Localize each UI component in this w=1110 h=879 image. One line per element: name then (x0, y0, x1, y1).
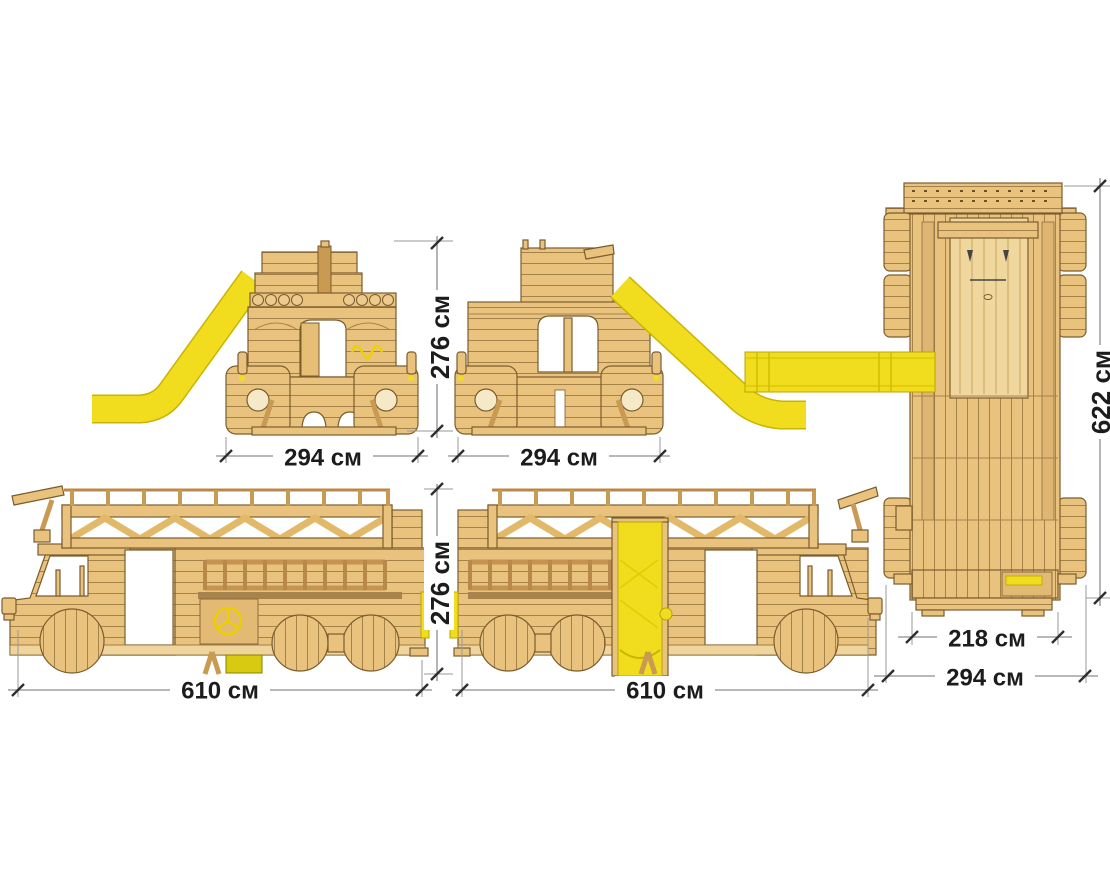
left-bench-shadow (198, 592, 402, 599)
front-roof-lower (255, 273, 362, 295)
rear-hub-right (621, 389, 643, 411)
right-front-bumper (868, 598, 882, 614)
front-roof-post (318, 246, 331, 295)
front-hub-right (375, 389, 397, 411)
plan-wheels-right (1058, 213, 1086, 578)
front-mirror-right (407, 352, 416, 374)
right-front-wheel (774, 609, 838, 673)
side-right-length-label: 610 см (626, 678, 704, 705)
left-ladder-overhang (12, 486, 64, 542)
front-hub-left (247, 389, 269, 411)
right-door-opening (705, 550, 757, 645)
left-top-railing (64, 490, 390, 506)
right-wheel-connector (535, 634, 551, 652)
right-bench-shadow (468, 592, 618, 599)
plan-bridge-platform (745, 352, 935, 392)
upper-height-label: 276 см (425, 295, 455, 379)
plan-front-cap (916, 598, 1052, 610)
rear-mirror-left (457, 352, 466, 374)
plan-inner-width-label: 218 см (948, 626, 1026, 653)
right-bed-top-chord (488, 505, 818, 517)
plan-overall-width-label: 294 см (946, 665, 1024, 692)
truck-front (226, 241, 418, 435)
dimension-rear-width: 294 см (448, 437, 670, 472)
plan-mirror-left (894, 574, 912, 584)
front-door-leaf (301, 323, 319, 376)
left-front-wheel (40, 609, 104, 673)
truck-rear (455, 240, 663, 435)
left-yellow-step (226, 655, 262, 673)
front-roof-upper (262, 252, 357, 275)
front-mirror-left (238, 352, 247, 374)
right-rear-wheel-1 (480, 615, 536, 671)
right-ladder-overhang (838, 487, 878, 542)
technical-drawing: 294 см 294 см 276 см 622 см 218 см (0, 0, 1110, 879)
drawing-page: 294 см 294 см 276 см 622 см 218 см (0, 0, 1110, 879)
left-support-frame (205, 652, 262, 674)
front-lamp-right (408, 375, 414, 381)
view-side-right (450, 487, 882, 676)
left-rear-bumper (410, 648, 428, 656)
left-wheel-connector (328, 634, 344, 652)
plan-cab-roof (904, 183, 1062, 213)
dimension-lower-height: 276 см (424, 483, 455, 681)
right-top-railing (492, 490, 816, 506)
plan-playhouse-room (950, 218, 1028, 398)
dimension-front-width: 294 см (216, 437, 428, 472)
ramp-knob (660, 608, 672, 620)
view-side-left (2, 486, 429, 674)
left-rear-wheel-2 (343, 615, 399, 671)
rear-window-post (564, 318, 572, 372)
front-width-label: 294 см (284, 445, 362, 472)
rear-width-label: 294 см (520, 445, 598, 472)
left-bed-top-chord (62, 505, 392, 517)
plan-side-step (896, 506, 912, 530)
rear-hub-left (475, 389, 497, 411)
plan-mirror-right (1058, 574, 1076, 584)
rear-center-slit (555, 390, 565, 429)
left-bed-rear-wall (392, 510, 422, 548)
climbing-ramp (612, 518, 672, 676)
rear-mirror-right (652, 352, 661, 374)
left-door-opening (125, 550, 173, 645)
left-rear-wheel-1 (272, 615, 328, 671)
view-front (92, 241, 418, 435)
left-bed-bottom-chord (62, 538, 392, 548)
plan-length-label: 622 см (1086, 350, 1110, 434)
plan-yellow-detail (1006, 576, 1042, 585)
side-left-length-label: 610 см (181, 678, 259, 705)
plan-room-header (938, 222, 1038, 238)
right-rear-wheel-2 (549, 615, 605, 671)
right-bed-rear-wall (458, 510, 490, 548)
view-rear (455, 240, 806, 435)
left-truss (70, 518, 385, 539)
left-front-bumper (2, 598, 16, 614)
front-skid (252, 427, 396, 435)
dimension-plan-inner-width: 218 см (898, 612, 1072, 653)
rear-skid (472, 427, 646, 435)
lower-height-label: 276 см (425, 541, 455, 625)
front-finial (321, 241, 329, 247)
front-lamp-left (239, 375, 245, 381)
